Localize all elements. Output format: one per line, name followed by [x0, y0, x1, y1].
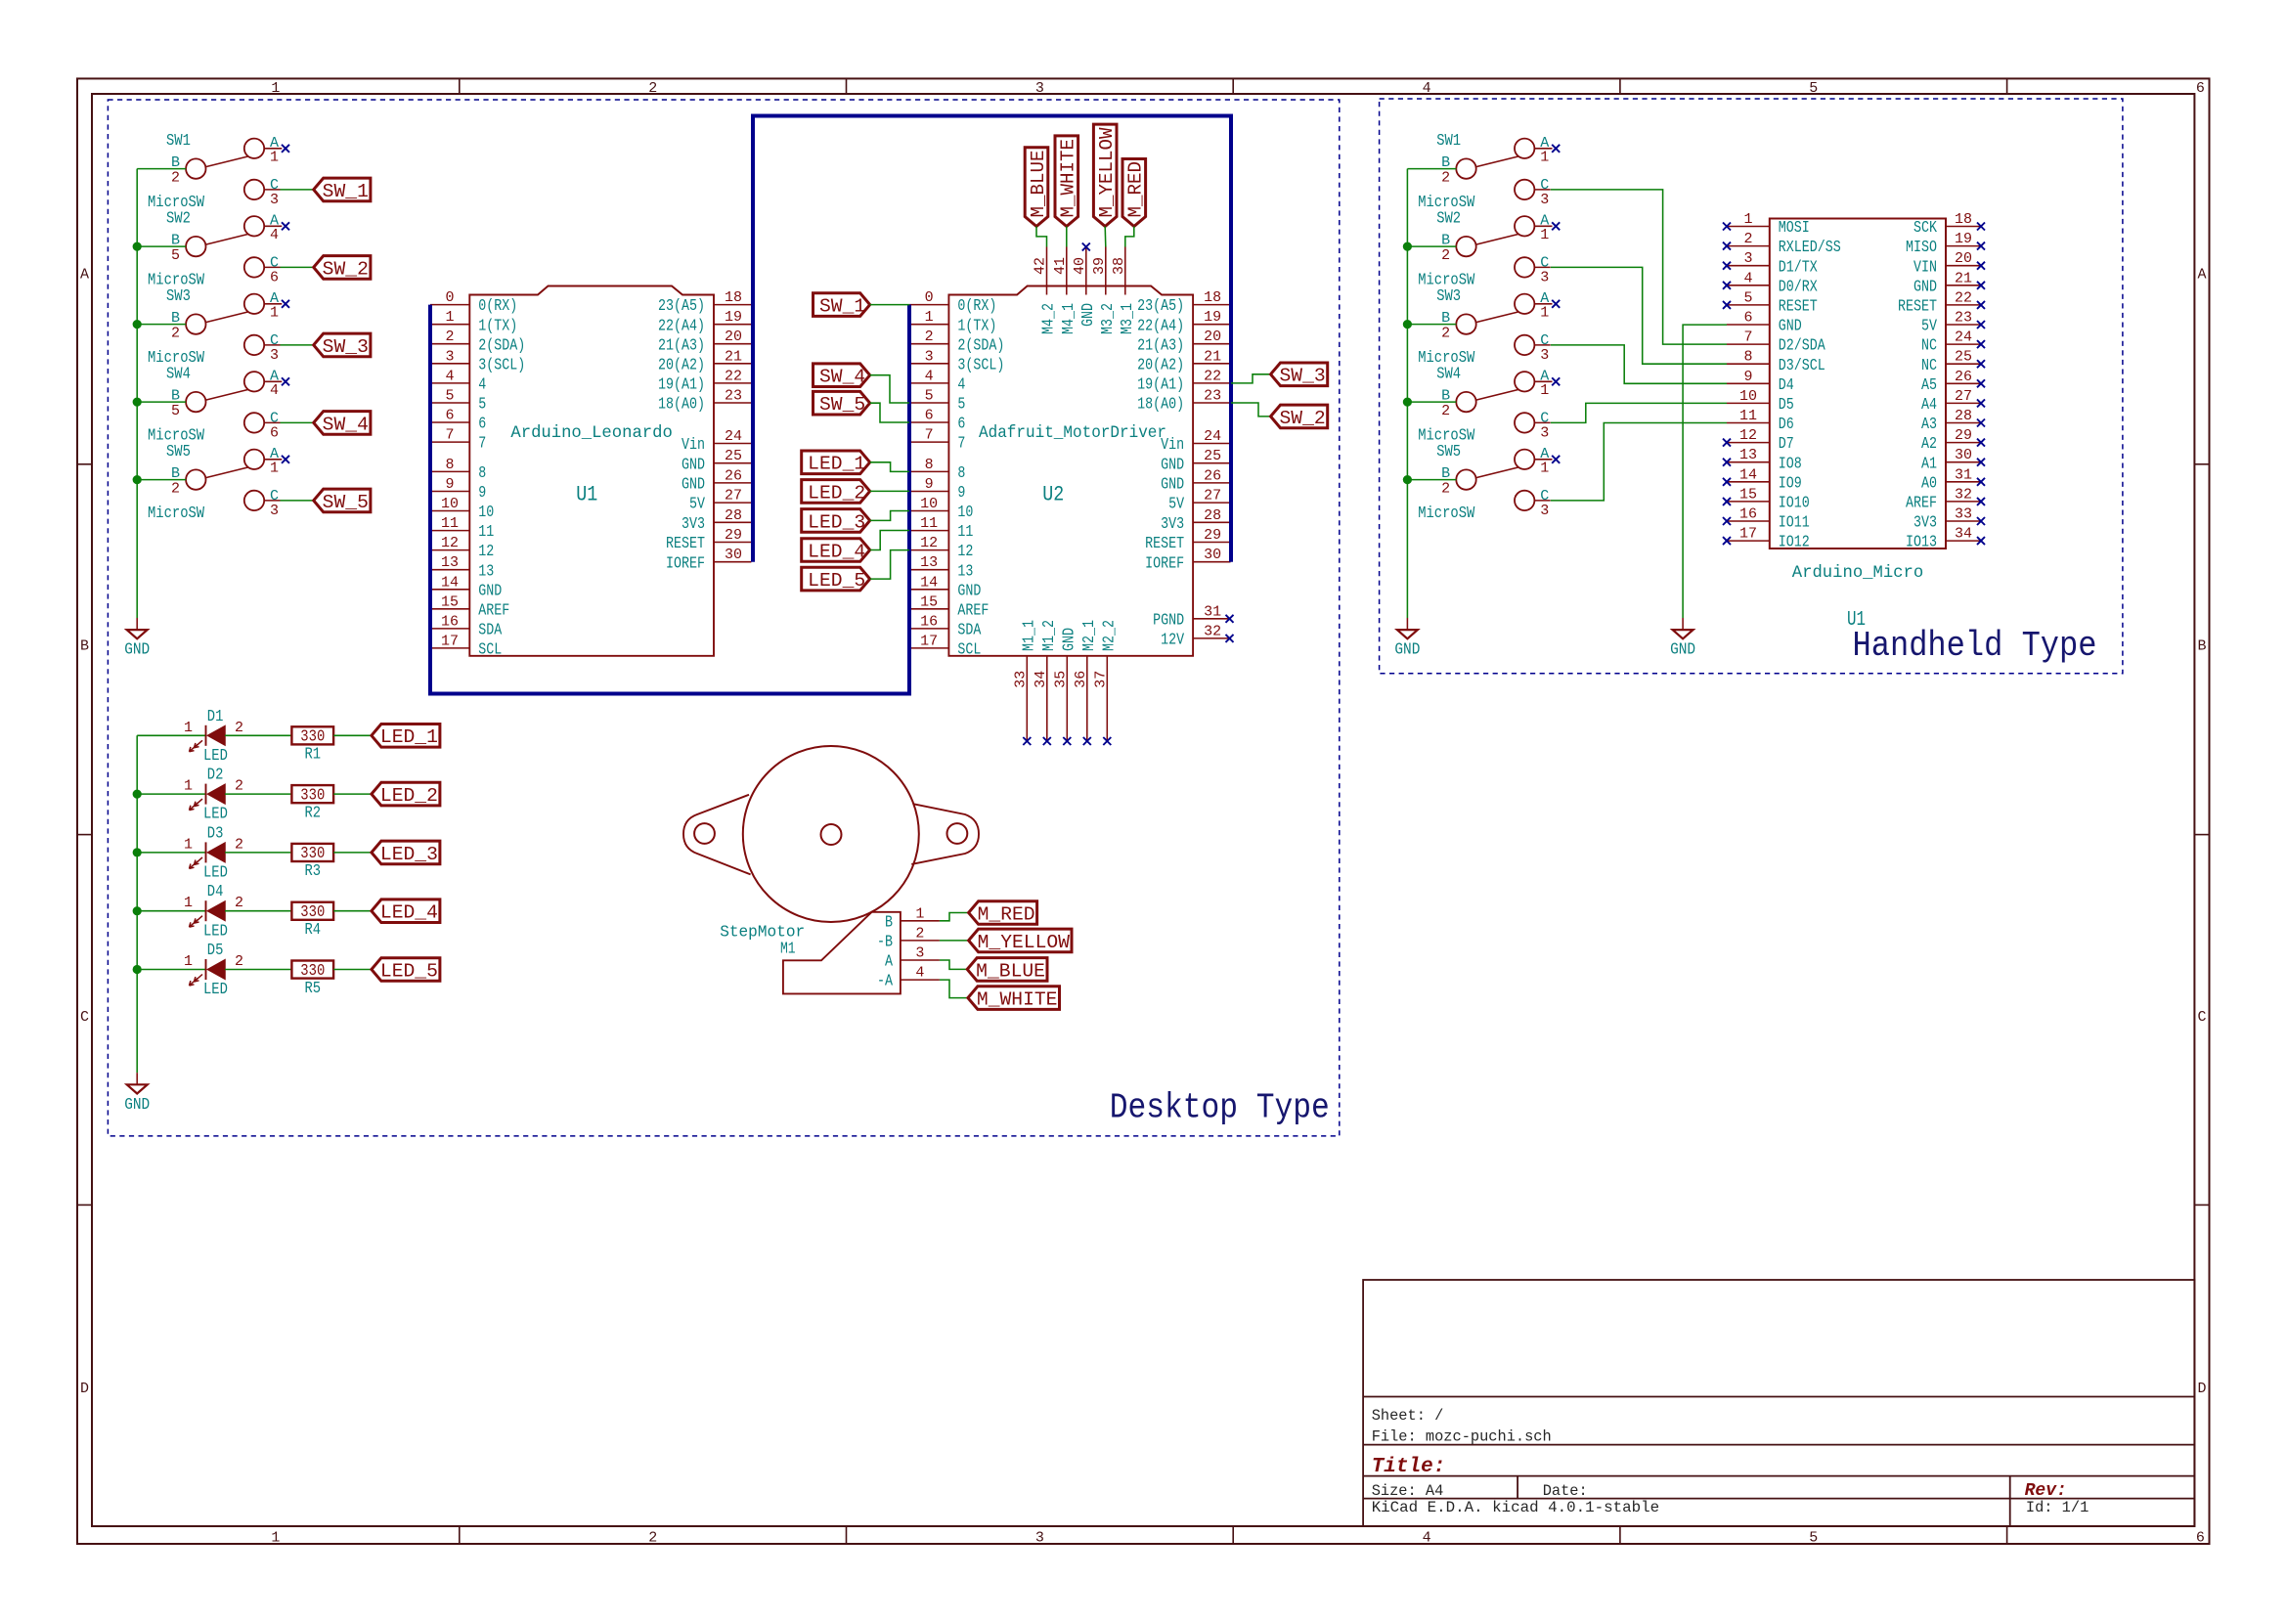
svg-text:34: 34	[1033, 671, 1049, 688]
svg-text:GND: GND	[1394, 640, 1420, 659]
svg-text:A1: A1	[1921, 454, 1937, 472]
svg-text:VIN: VIN	[1913, 257, 1937, 276]
svg-text:R1: R1	[305, 745, 322, 764]
svg-text:1: 1	[270, 305, 279, 322]
svg-text:SW2: SW2	[1436, 209, 1461, 228]
svg-text:5: 5	[1809, 1529, 1818, 1546]
svg-text:D4: D4	[1779, 375, 1794, 394]
svg-text:Arduino_Leonardo: Arduino_Leonardo	[510, 423, 672, 443]
svg-text:MOSI: MOSI	[1779, 218, 1810, 237]
svg-text:3: 3	[1540, 425, 1549, 442]
svg-text:21(A3): 21(A3)	[1137, 335, 1184, 354]
svg-text:SCL: SCL	[957, 640, 981, 659]
svg-text:330: 330	[300, 902, 325, 921]
svg-text:SW_2: SW_2	[323, 258, 369, 280]
svg-text:D3/SCL: D3/SCL	[1779, 356, 1825, 374]
svg-text:39: 39	[1091, 257, 1108, 275]
svg-text:1: 1	[1540, 227, 1549, 243]
svg-text:19: 19	[1955, 231, 1972, 247]
svg-text:330: 330	[300, 844, 325, 862]
svg-text:D2: D2	[207, 766, 224, 784]
svg-text:MISO: MISO	[1906, 238, 1937, 256]
svg-text:2: 2	[171, 325, 180, 341]
svg-text:8: 8	[445, 457, 454, 473]
svg-text:1: 1	[445, 309, 454, 326]
svg-text:1: 1	[184, 720, 193, 736]
svg-text:18: 18	[1955, 211, 1972, 228]
svg-text:18(A0): 18(A0)	[1137, 395, 1184, 414]
svg-text:25: 25	[725, 448, 742, 464]
svg-text:24: 24	[1204, 428, 1221, 445]
svg-text:GND: GND	[1161, 455, 1184, 473]
svg-text:1: 1	[915, 905, 924, 922]
svg-text:SW4: SW4	[1436, 365, 1461, 383]
svg-text:File: mozc-puchi.sch: File: mozc-puchi.sch	[1372, 1427, 1552, 1445]
svg-text:27: 27	[725, 488, 742, 505]
svg-text:A2: A2	[1921, 434, 1937, 453]
svg-text:6: 6	[270, 425, 279, 442]
svg-text:M4_1: M4_1	[1059, 303, 1078, 334]
svg-text:PGND: PGND	[1153, 610, 1184, 629]
svg-text:1: 1	[184, 778, 193, 795]
svg-text:35: 35	[1052, 671, 1069, 688]
svg-text:M_BLUE: M_BLUE	[976, 960, 1045, 982]
svg-text:M_YELLOW: M_YELLOW	[978, 932, 1071, 953]
svg-text:5: 5	[1809, 80, 1818, 97]
svg-text:1: 1	[271, 1529, 280, 1546]
svg-text:12V: 12V	[1161, 631, 1184, 649]
svg-text:2: 2	[1441, 403, 1450, 419]
svg-text:32: 32	[1204, 623, 1221, 639]
svg-text:1: 1	[1540, 382, 1549, 399]
svg-text:1(TX): 1(TX)	[478, 316, 517, 334]
svg-text:C: C	[2197, 1009, 2206, 1026]
svg-text:22(A4): 22(A4)	[658, 316, 705, 334]
svg-text:AREF: AREF	[1906, 494, 1937, 512]
svg-text:4: 4	[1743, 270, 1752, 286]
svg-text:A: A	[2197, 267, 2206, 284]
svg-text:2: 2	[235, 720, 243, 736]
svg-text:RESET: RESET	[1145, 534, 1184, 552]
svg-text:9: 9	[445, 476, 454, 493]
svg-text:GND: GND	[682, 475, 705, 494]
svg-text:3: 3	[915, 945, 924, 962]
svg-text:SW_5: SW_5	[323, 492, 369, 513]
svg-text:1: 1	[1540, 150, 1549, 166]
svg-text:GND: GND	[1078, 303, 1097, 327]
svg-text:LED_3: LED_3	[380, 844, 438, 865]
svg-text:D6: D6	[1779, 415, 1794, 433]
svg-text:SW4: SW4	[166, 365, 191, 383]
svg-text:30: 30	[1955, 447, 1972, 463]
svg-text:Id: 1/1: Id: 1/1	[2026, 1499, 2089, 1516]
svg-text:LED: LED	[203, 863, 228, 882]
svg-text:IO13: IO13	[1906, 533, 1937, 551]
svg-text:13: 13	[441, 554, 459, 571]
svg-text:5V: 5V	[1168, 495, 1184, 513]
svg-text:5V: 5V	[689, 495, 705, 513]
svg-text:M_BLUE: M_BLUE	[1028, 151, 1049, 218]
svg-text:2(SDA): 2(SDA)	[957, 335, 1004, 354]
svg-text:AREF: AREF	[478, 600, 509, 619]
svg-text:1: 1	[184, 895, 193, 911]
svg-text:6: 6	[1743, 310, 1752, 327]
svg-text:3: 3	[1540, 347, 1549, 364]
svg-text:33: 33	[1012, 671, 1029, 688]
svg-text:7: 7	[957, 434, 965, 453]
svg-text:LED_1: LED_1	[380, 726, 438, 748]
svg-text:14: 14	[1739, 466, 1757, 483]
svg-text:30: 30	[725, 547, 742, 563]
svg-text:IO8: IO8	[1779, 454, 1802, 472]
svg-text:21(A3): 21(A3)	[658, 335, 705, 354]
svg-text:20(A2): 20(A2)	[1137, 355, 1184, 373]
svg-text:M2_1: M2_1	[1079, 620, 1098, 651]
svg-text:16: 16	[1739, 506, 1757, 523]
svg-text:1: 1	[270, 461, 279, 477]
svg-text:9: 9	[925, 476, 934, 493]
svg-text:0(RX): 0(RX)	[478, 296, 517, 315]
svg-text:LED_4: LED_4	[808, 541, 865, 562]
svg-text:M_YELLOW: M_YELLOW	[1096, 127, 1118, 217]
svg-text:A: A	[885, 952, 893, 971]
svg-text:M_WHITE: M_WHITE	[977, 989, 1058, 1011]
svg-text:10: 10	[957, 503, 973, 521]
svg-text:2: 2	[1441, 247, 1450, 264]
svg-text:D4: D4	[207, 882, 224, 900]
svg-text:10: 10	[1739, 388, 1757, 405]
svg-text:6: 6	[925, 408, 934, 424]
svg-text:4: 4	[1423, 80, 1431, 97]
svg-text:NC: NC	[1921, 356, 1937, 374]
svg-text:LED_4: LED_4	[380, 902, 438, 924]
svg-text:GND: GND	[682, 455, 705, 473]
svg-text:2: 2	[1743, 231, 1752, 247]
svg-text:2: 2	[235, 836, 243, 853]
svg-text:330: 330	[300, 961, 325, 980]
svg-text:37: 37	[1092, 671, 1109, 688]
svg-text:14: 14	[441, 574, 459, 591]
svg-text:4: 4	[445, 368, 454, 384]
svg-text:18: 18	[725, 289, 742, 306]
svg-text:SW3: SW3	[166, 286, 191, 305]
svg-text:4: 4	[270, 382, 279, 399]
svg-text:M3_2: M3_2	[1098, 303, 1117, 334]
svg-text:15: 15	[441, 593, 459, 610]
svg-text:GND: GND	[124, 1095, 150, 1114]
svg-text:17: 17	[920, 633, 938, 649]
svg-text:IOREF: IOREF	[666, 553, 705, 572]
svg-text:5: 5	[1743, 289, 1752, 306]
svg-text:2: 2	[445, 329, 454, 345]
svg-text:330: 330	[300, 785, 325, 804]
svg-text:8: 8	[957, 463, 965, 482]
svg-text:M_RED: M_RED	[1125, 161, 1147, 218]
svg-text:SDA: SDA	[478, 621, 502, 639]
svg-text:Date:: Date:	[1543, 1482, 1588, 1500]
svg-text:2: 2	[235, 778, 243, 795]
svg-text:8: 8	[925, 457, 934, 473]
svg-text:A3: A3	[1921, 415, 1937, 433]
svg-text:GND: GND	[957, 581, 981, 599]
svg-text:3: 3	[1035, 80, 1044, 97]
svg-text:D7: D7	[1779, 434, 1794, 453]
svg-text:LED_5: LED_5	[380, 960, 438, 982]
svg-text:36: 36	[1073, 671, 1089, 688]
svg-text:18(A0): 18(A0)	[658, 395, 705, 414]
svg-text:IOREF: IOREF	[1145, 553, 1184, 572]
svg-text:5: 5	[478, 395, 486, 414]
svg-text:M_RED: M_RED	[978, 903, 1035, 925]
svg-text:2: 2	[171, 169, 180, 186]
svg-text:SW3: SW3	[1436, 286, 1461, 305]
svg-text:SW_3: SW_3	[1280, 366, 1326, 387]
svg-text:3: 3	[445, 348, 454, 365]
svg-text:LED_2: LED_2	[380, 785, 438, 807]
svg-text:Sheet: /: Sheet: /	[1372, 1407, 1444, 1425]
svg-text:2: 2	[648, 80, 657, 97]
svg-text:5: 5	[445, 388, 454, 405]
svg-text:1(TX): 1(TX)	[957, 316, 996, 334]
svg-text:12: 12	[441, 535, 459, 551]
svg-text:Arduino_Micro: Arduino_Micro	[1792, 563, 1923, 583]
svg-text:9: 9	[957, 483, 965, 502]
svg-text:D1: D1	[207, 707, 224, 725]
svg-text:20: 20	[1955, 250, 1972, 267]
svg-text:23: 23	[725, 388, 742, 405]
svg-text:3V3: 3V3	[1913, 513, 1937, 532]
svg-text:29: 29	[1955, 427, 1972, 444]
svg-text:6: 6	[478, 415, 486, 433]
svg-text:SW_5: SW_5	[819, 394, 865, 416]
svg-text:42: 42	[1033, 257, 1049, 275]
svg-text:25: 25	[1955, 349, 1972, 366]
svg-text:-A: -A	[877, 972, 893, 990]
svg-text:RESET: RESET	[666, 534, 705, 552]
svg-text:D2/SDA: D2/SDA	[1779, 336, 1825, 355]
svg-text:SCL: SCL	[478, 640, 502, 659]
svg-text:19: 19	[1204, 309, 1221, 326]
svg-text:-B: -B	[877, 933, 893, 951]
svg-text:10: 10	[920, 496, 938, 512]
svg-text:5: 5	[925, 388, 934, 405]
svg-text:5V: 5V	[1921, 317, 1937, 335]
svg-text:2: 2	[1441, 480, 1450, 497]
svg-text:34: 34	[1955, 526, 1972, 543]
svg-text:LED: LED	[203, 805, 228, 823]
svg-text:31: 31	[1955, 466, 1972, 483]
svg-text:26: 26	[1204, 467, 1221, 484]
svg-text:4: 4	[270, 227, 279, 243]
svg-text:0(RX): 0(RX)	[957, 296, 996, 315]
svg-text:3V3: 3V3	[1161, 514, 1184, 533]
svg-text:16: 16	[441, 613, 459, 630]
svg-text:10: 10	[478, 503, 494, 521]
svg-text:13: 13	[478, 561, 494, 580]
svg-text:SW5: SW5	[166, 442, 191, 461]
svg-text:15: 15	[920, 593, 938, 610]
svg-text:MicroSW: MicroSW	[148, 504, 204, 522]
svg-text:23: 23	[1204, 388, 1221, 405]
svg-text:SW_1: SW_1	[819, 296, 865, 318]
svg-text:IO9: IO9	[1779, 473, 1802, 492]
svg-text:32: 32	[1955, 486, 1972, 503]
svg-text:SW1: SW1	[166, 131, 191, 150]
svg-text:IO12: IO12	[1779, 533, 1810, 551]
svg-text:3: 3	[270, 347, 279, 364]
svg-text:19(A1): 19(A1)	[658, 375, 705, 394]
svg-text:R4: R4	[305, 920, 322, 939]
svg-text:SW_1: SW_1	[323, 181, 369, 202]
svg-text:Rev:: Rev:	[2025, 1481, 2067, 1501]
svg-text:7: 7	[1743, 329, 1752, 346]
svg-text:5: 5	[171, 247, 180, 264]
svg-text:LED: LED	[203, 980, 228, 998]
svg-text:GND: GND	[478, 581, 502, 599]
svg-text:M1: M1	[780, 940, 796, 958]
svg-text:17: 17	[441, 633, 459, 649]
svg-text:15: 15	[1739, 486, 1757, 503]
svg-text:IO11: IO11	[1779, 513, 1810, 532]
svg-text:24: 24	[1955, 329, 1972, 346]
svg-text:2: 2	[235, 953, 243, 970]
svg-text:Vin: Vin	[682, 435, 705, 454]
svg-text:2: 2	[648, 1529, 657, 1546]
svg-text:12: 12	[957, 542, 973, 560]
svg-text:M_WHITE: M_WHITE	[1058, 139, 1079, 218]
svg-text:38: 38	[1111, 257, 1127, 275]
svg-text:GND: GND	[1779, 317, 1802, 335]
svg-text:20: 20	[1204, 329, 1221, 345]
svg-text:B: B	[2197, 638, 2206, 655]
svg-text:11: 11	[1739, 408, 1757, 424]
svg-text:1: 1	[271, 80, 280, 97]
svg-text:1: 1	[184, 953, 193, 970]
svg-text:3: 3	[1540, 192, 1549, 208]
svg-text:2: 2	[925, 329, 934, 345]
svg-text:3: 3	[1743, 250, 1752, 267]
svg-text:2(SDA): 2(SDA)	[478, 335, 525, 354]
svg-text:9: 9	[478, 483, 486, 502]
svg-text:10: 10	[441, 496, 459, 512]
svg-text:3: 3	[925, 348, 934, 365]
svg-text:B: B	[80, 638, 89, 655]
svg-text:SW_4: SW_4	[323, 414, 369, 435]
svg-text:M2_2: M2_2	[1099, 620, 1118, 651]
svg-text:1: 1	[1743, 211, 1752, 228]
svg-text:A4: A4	[1921, 395, 1937, 414]
svg-text:LED: LED	[203, 921, 228, 940]
svg-text:19(A1): 19(A1)	[1137, 375, 1184, 394]
svg-text:6: 6	[2196, 80, 2205, 97]
svg-text:11: 11	[957, 522, 973, 541]
svg-text:2: 2	[235, 895, 243, 911]
svg-text:1: 1	[270, 150, 279, 166]
svg-text:LED_3: LED_3	[808, 511, 865, 533]
svg-text:Adafruit_MotorDriver: Adafruit_MotorDriver	[979, 423, 1166, 443]
svg-text:0: 0	[925, 289, 934, 306]
svg-text:28: 28	[725, 507, 742, 524]
svg-text:SW5: SW5	[1436, 442, 1461, 461]
svg-text:3V3: 3V3	[682, 514, 705, 533]
svg-text:A0: A0	[1921, 473, 1937, 492]
svg-text:R3: R3	[305, 861, 322, 880]
svg-text:12: 12	[920, 535, 938, 551]
svg-text:D1/TX: D1/TX	[1779, 257, 1818, 276]
svg-text:6: 6	[957, 415, 965, 433]
svg-text:22: 22	[1204, 368, 1221, 384]
svg-text:19: 19	[725, 309, 742, 326]
svg-text:RESET: RESET	[1779, 297, 1818, 316]
svg-text:41: 41	[1052, 257, 1069, 275]
svg-text:1: 1	[184, 836, 193, 853]
svg-text:3(SCL): 3(SCL)	[478, 355, 525, 373]
svg-text:23(A5): 23(A5)	[658, 296, 705, 315]
svg-text:4: 4	[478, 375, 486, 394]
svg-text:24: 24	[725, 428, 742, 445]
svg-text:D3: D3	[207, 823, 224, 842]
svg-text:6: 6	[445, 408, 454, 424]
svg-text:B: B	[885, 912, 893, 931]
svg-text:M1_2: M1_2	[1039, 620, 1058, 651]
svg-text:7: 7	[445, 427, 454, 444]
svg-text:2: 2	[1441, 169, 1450, 186]
svg-text:SW1: SW1	[1436, 131, 1461, 150]
svg-text:U1: U1	[576, 483, 597, 507]
svg-text:NC: NC	[1921, 336, 1937, 355]
svg-text:0: 0	[445, 289, 454, 306]
svg-text:U2: U2	[1042, 483, 1064, 507]
svg-text:22: 22	[1955, 289, 1972, 306]
svg-text:14: 14	[920, 574, 938, 591]
svg-text:GND: GND	[124, 640, 150, 659]
svg-text:9: 9	[1743, 369, 1752, 385]
svg-text:3: 3	[270, 192, 279, 208]
svg-text:GND: GND	[1913, 277, 1937, 295]
svg-text:RESET: RESET	[1898, 297, 1937, 316]
svg-text:40: 40	[1072, 257, 1088, 275]
svg-text:D: D	[80, 1381, 89, 1397]
svg-text:GND: GND	[1161, 475, 1184, 494]
svg-text:RXLED/SS: RXLED/SS	[1779, 238, 1841, 256]
svg-text:1: 1	[925, 309, 934, 326]
svg-text:28: 28	[1955, 408, 1972, 424]
svg-text:3(SCL): 3(SCL)	[957, 355, 1004, 373]
svg-text:13: 13	[1739, 447, 1757, 463]
svg-text:23: 23	[1955, 310, 1972, 327]
svg-text:C: C	[80, 1009, 89, 1026]
svg-text:IO10: IO10	[1779, 494, 1810, 512]
svg-text:D5: D5	[207, 941, 224, 959]
svg-text:3: 3	[1035, 1529, 1044, 1546]
svg-text:AREF: AREF	[957, 600, 989, 619]
svg-text:8: 8	[478, 463, 486, 482]
svg-text:KiCad E.D.A. kicad 4.0.1-stab: KiCad E.D.A. kicad 4.0.1-stable	[1372, 1499, 1659, 1516]
svg-text:D5: D5	[1779, 395, 1794, 414]
svg-text:12: 12	[478, 542, 494, 560]
svg-text:2: 2	[1441, 325, 1450, 341]
svg-text:M4_2: M4_2	[1039, 303, 1058, 334]
svg-text:3: 3	[1540, 270, 1549, 286]
svg-text:U1: U1	[1847, 609, 1866, 632]
svg-text:SW_2: SW_2	[1280, 408, 1326, 429]
svg-text:1: 1	[1540, 305, 1549, 322]
svg-text:12: 12	[1739, 427, 1757, 444]
svg-text:Title:: Title:	[1372, 1456, 1446, 1478]
svg-text:11: 11	[478, 522, 494, 541]
svg-text:20(A2): 20(A2)	[658, 355, 705, 373]
svg-text:8: 8	[1743, 349, 1752, 366]
